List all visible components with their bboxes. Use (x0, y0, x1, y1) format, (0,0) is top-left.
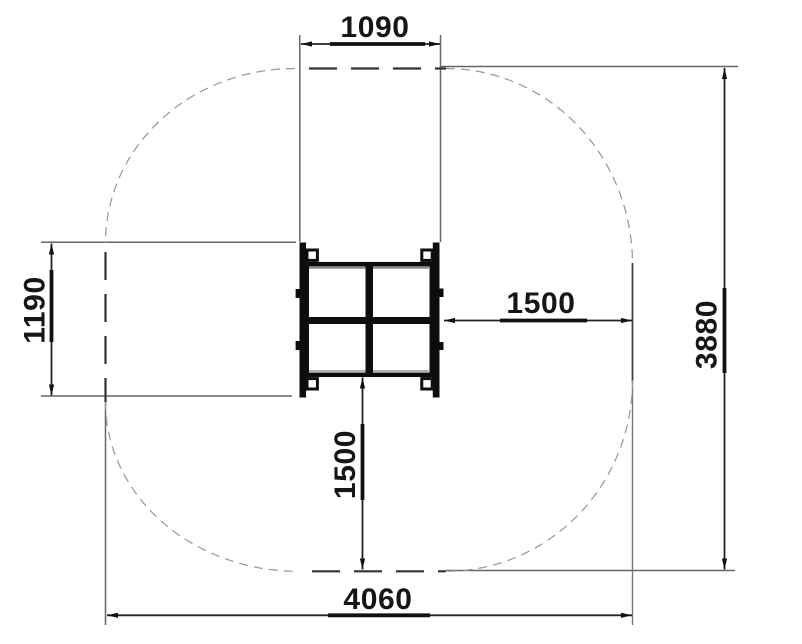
svg-text:1190: 1190 (19, 276, 52, 343)
svg-text:1090: 1090 (340, 11, 409, 44)
svg-text:1500: 1500 (329, 430, 362, 499)
svg-text:3880: 3880 (691, 300, 724, 369)
svg-text:4060: 4060 (343, 583, 412, 616)
svg-text:1500: 1500 (506, 287, 575, 320)
